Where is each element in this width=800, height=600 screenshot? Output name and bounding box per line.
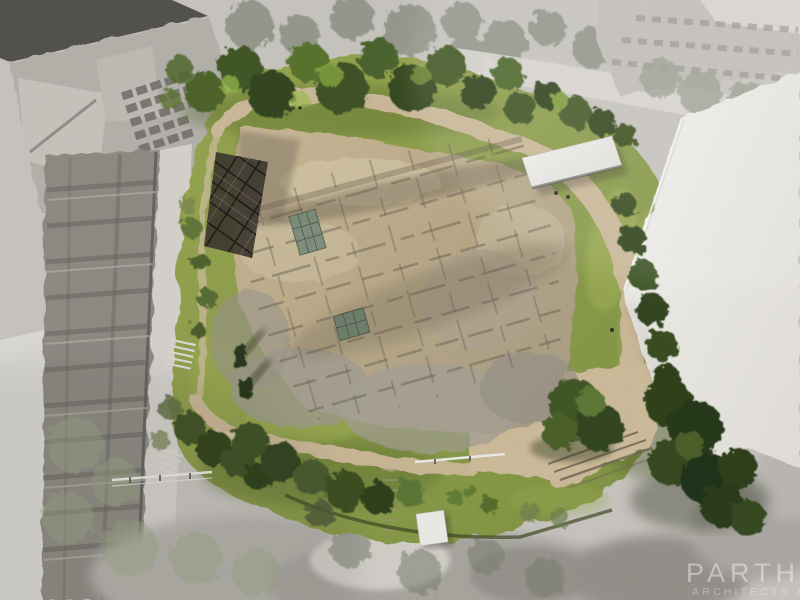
photo-finish [0,0,800,600]
watermark-line1: PARTHEN [686,558,800,588]
aerial-rendering: PARTHEN ARCHITECTS ASS [0,0,800,600]
rendering-canvas: PARTHEN ARCHITECTS ASS [0,0,800,600]
watermark-line2: ARCHITECTS ASS [692,586,800,598]
watermark: PARTHEN ARCHITECTS ASS [686,558,800,598]
